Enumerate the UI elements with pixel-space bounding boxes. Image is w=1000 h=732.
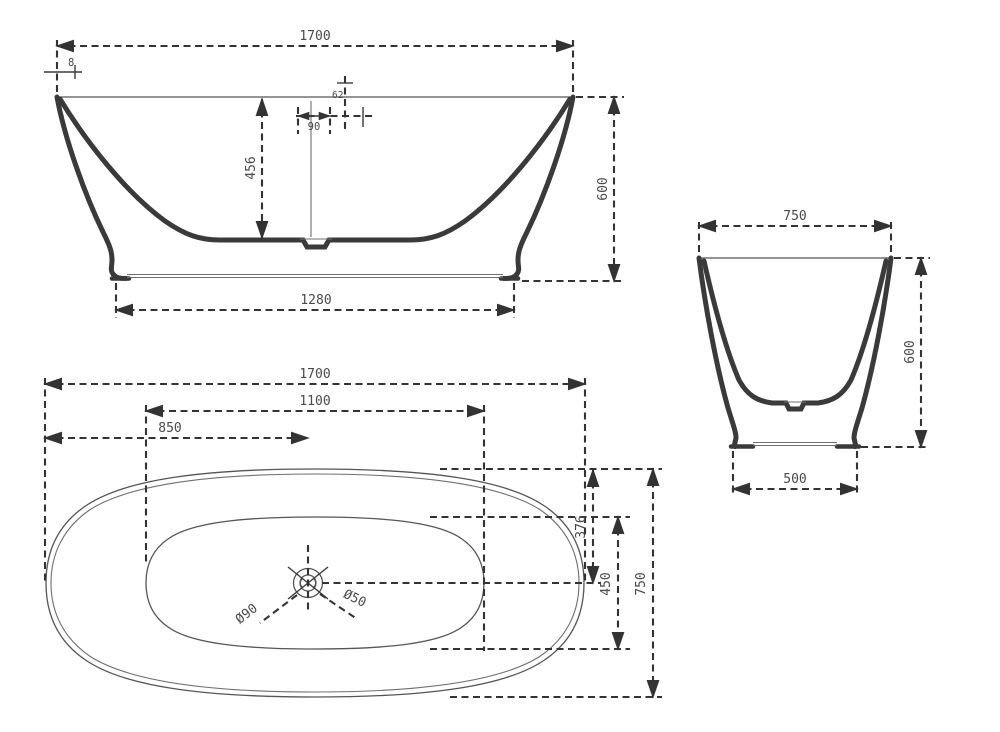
dim-front-inner-depth: 456 (244, 99, 262, 238)
front-base-length-label: 1280 (300, 293, 331, 308)
drain-diameter-callout: Ø90 (233, 595, 297, 627)
bathtub-drawing: 1700 8 62 90 456 600 (0, 0, 1000, 732)
dim-side-base-width: 500 (733, 451, 857, 497)
dim-side-overall-height: 600 (861, 258, 930, 447)
top-overall-length-label: 1700 (299, 367, 330, 382)
front-overflow-width-label: 90 (308, 121, 321, 133)
side-overall-height-label: 600 (903, 340, 918, 363)
top-view: Ø90 Ø50 1700 1100 850 (45, 367, 662, 697)
top-tub-body (46, 469, 584, 697)
outlet-diameter-label: Ø50 (341, 587, 369, 611)
top-drain-from-edge-label: 376 (574, 515, 589, 538)
dim-top-overall-width: 750 (634, 469, 653, 697)
dim-top-inner-length: 1100 (146, 394, 484, 651)
dim-top-drain-from-edge: 376 (574, 470, 593, 583)
dim-side-overall-width: 750 (699, 209, 891, 252)
top-inner-length-label: 1100 (299, 394, 330, 409)
top-overall-width-label: 750 (634, 572, 649, 595)
dim-top-drain-from-end: 850 (45, 421, 308, 438)
drain-diameter-label: Ø90 (233, 601, 261, 627)
dim-front-rim-lip: 8 (44, 57, 82, 79)
front-rim-lip-label: 8 (68, 57, 74, 69)
front-overall-height-label: 600 (596, 177, 611, 200)
dim-front-base-length: 1280 (116, 283, 514, 318)
side-tub-body (699, 258, 891, 447)
side-base-width-label: 500 (783, 472, 806, 487)
dim-front-overall-height: 600 (522, 97, 624, 281)
front-inner-depth-label: 456 (244, 156, 259, 179)
front-view: 1700 8 62 90 456 600 (44, 29, 624, 318)
front-overall-width-label: 1700 (299, 29, 330, 44)
top-inner-width-label: 450 (599, 572, 614, 595)
technical-drawing-canvas: 1700 8 62 90 456 600 (0, 0, 1000, 732)
front-overflow-offset-label: 62 (332, 90, 343, 101)
outlet-diameter-callout: Ø50 (320, 587, 368, 619)
dim-top-inner-width: 450 (599, 517, 618, 649)
side-view: 750 600 500 (699, 209, 930, 497)
dim-front-overall-width: 1700 (57, 29, 573, 92)
dim-front-overflow: 62 90 (296, 76, 376, 134)
top-drain-from-end-label: 850 (158, 421, 181, 436)
side-overall-width-label: 750 (783, 209, 806, 224)
